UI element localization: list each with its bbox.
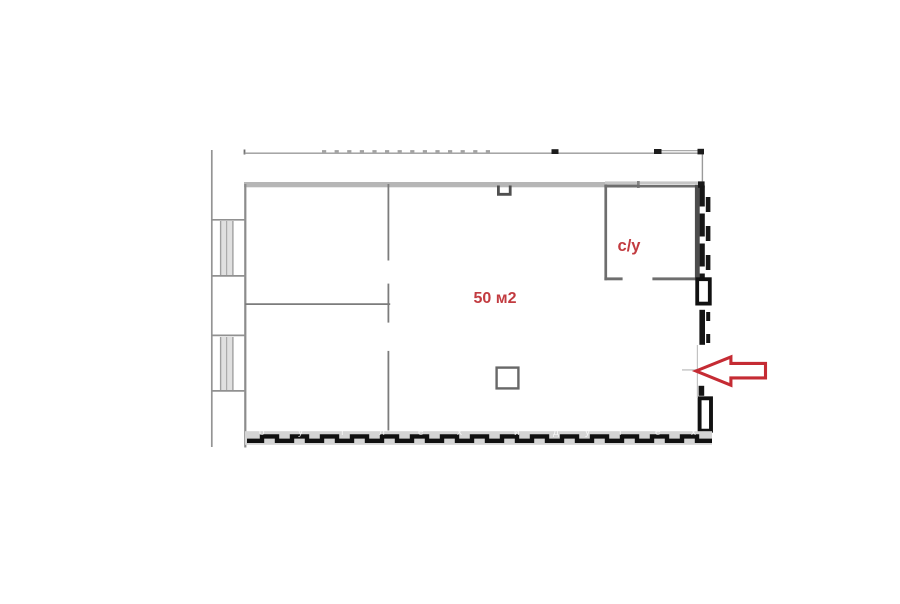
svg-text:е: е (418, 427, 424, 438)
svg-text:у: у (298, 427, 303, 438)
svg-text:е: е (655, 427, 661, 438)
svg-text:х: х (691, 427, 696, 438)
svg-text:и: и (514, 427, 520, 438)
svg-text:с/у: с/у (618, 237, 642, 255)
svg-text:д: д (553, 427, 559, 438)
svg-text:л: л (379, 427, 385, 438)
svg-text:50 м2: 50 м2 (474, 290, 517, 307)
svg-text:х: х (457, 427, 462, 438)
svg-text:у: у (585, 427, 590, 438)
svg-text:т: т (340, 427, 345, 438)
svg-text:о: о (259, 427, 265, 438)
svg-text:т: т (618, 427, 623, 438)
